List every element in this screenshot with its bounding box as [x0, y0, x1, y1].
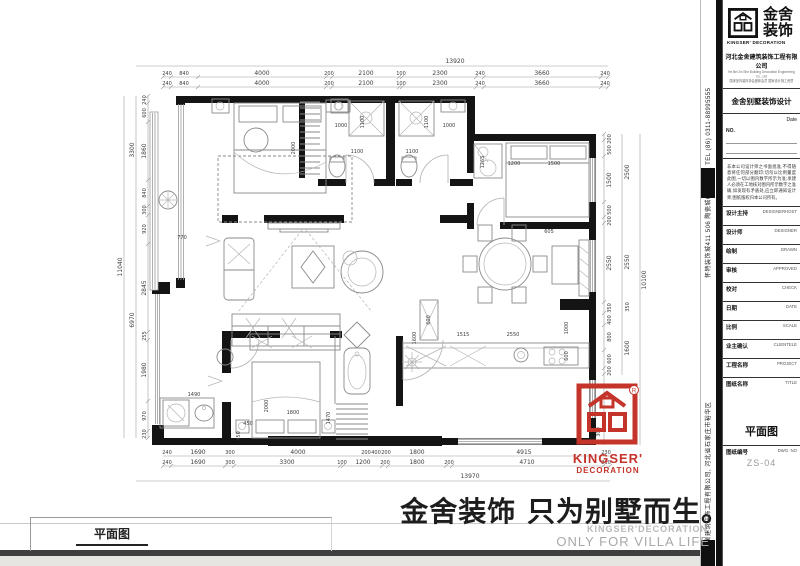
titleblock-row-date: 日期 DATE — [723, 301, 800, 320]
dim-label: 200 — [361, 450, 371, 456]
dim-label: 240 — [475, 81, 485, 87]
dim-label: 1490 — [188, 392, 201, 398]
kingser-logo-icon: R — [576, 383, 640, 447]
dim-label: 450 — [236, 431, 242, 441]
dim-label: 400 — [607, 315, 613, 325]
dim-label: 1100 — [424, 116, 430, 129]
row-value: TITLE — [785, 380, 797, 417]
dim-label: 2000 — [291, 142, 297, 155]
company-name: 河北金舍建筑装饰工程有限公司 — [723, 52, 800, 70]
dim-label: 100 — [396, 81, 406, 87]
row-value: DWG. NO — [778, 448, 797, 482]
dim-label: 6970 — [129, 312, 136, 327]
company-subtitle: 国家室内装饰协会团体会员 国家设计施工资质 — [727, 79, 796, 83]
dim-label: 800 — [607, 332, 613, 342]
dim-label: 1000 — [443, 123, 456, 129]
dim-label: 3660 — [534, 80, 549, 87]
plan-label-box: 平面图 — [30, 517, 332, 551]
dim-label: 1980 — [141, 362, 148, 377]
dim-label: 1600 — [412, 332, 418, 345]
dim-label: 1500 — [548, 161, 561, 167]
dim-label: 13970 — [460, 473, 479, 480]
dim-label: 1800 — [409, 459, 424, 466]
dim-label: 350 — [625, 302, 631, 312]
dim-label: 1000 — [564, 322, 570, 335]
kingser-brand-name: KINGSER' — [570, 452, 646, 466]
row-value: DESIGNERHOST — [763, 209, 797, 225]
dim-label: 255 — [142, 331, 148, 341]
dim-label: 4000 — [254, 70, 269, 77]
furniture-layer — [159, 99, 589, 438]
dim-label: 2000 — [264, 400, 270, 413]
dim-label: 200 — [607, 134, 613, 144]
dim-label: 200 — [607, 216, 613, 226]
slogan-en-large: ONLY FOR VILLA LIFE — [556, 534, 710, 549]
titleblock-row-drawn: 绘制 DRAWN — [723, 244, 800, 263]
titleblock-row-designer-host: 设计主持 DESIGNERHOST — [723, 206, 800, 225]
walls-layer — [152, 96, 596, 446]
dim-label: 300 — [225, 460, 235, 466]
row-value: PROJECT — [777, 361, 797, 377]
dim-label: 1600 — [624, 340, 631, 355]
no-label: NO. — [723, 125, 800, 134]
stairs-lower — [335, 336, 368, 439]
dim-label: 1200 — [355, 459, 370, 466]
row-label: 日期 — [726, 304, 737, 320]
row-label: 设计主持 — [726, 209, 748, 225]
dim-label: 1800 — [409, 449, 424, 456]
dim-label: 1000 — [335, 123, 348, 129]
dim-label: 200 — [380, 460, 390, 466]
dim-label: 3300 — [279, 459, 294, 466]
dim-label: 2550 — [624, 254, 631, 269]
dim-label: 200 — [324, 71, 334, 77]
dim-label: 500 — [607, 205, 613, 215]
dimension-lines — [124, 66, 640, 481]
dim-label: 920 — [142, 224, 148, 234]
row-value: APPROVED — [773, 266, 797, 282]
dim-label: 500 — [607, 145, 613, 155]
dim-label: 240 — [162, 460, 172, 466]
dim-label: 2550 — [507, 332, 520, 338]
brand-en: KINGSER' DECORATION — [727, 40, 785, 45]
dim-label: 3660 — [534, 70, 549, 77]
dim-label: 600 — [142, 108, 148, 118]
row-value: CLIENTELE — [774, 342, 797, 358]
dim-label: 240 — [162, 450, 172, 456]
row-label: 图纸编号 — [726, 448, 748, 482]
dim-label: 200 — [607, 366, 613, 376]
dim-label: 2500 — [624, 164, 631, 179]
dim-label: 230 — [142, 429, 148, 439]
dim-label: 2300 — [432, 80, 447, 87]
no-line — [726, 134, 797, 144]
brand-cn-bottom: 装饰 — [763, 22, 793, 38]
drawing-title: 平面图 — [723, 423, 800, 439]
disclaimer-text: 非本公司设计师之书面批准,不得随意将任何部分翻印;切勿以比例量度此图,一切以图内… — [723, 158, 800, 206]
row-label: 工程名称 — [726, 361, 748, 377]
dim-label: 300 — [142, 205, 148, 215]
dim-label: 11040 — [117, 257, 124, 276]
dim-label: 2300 — [432, 70, 447, 77]
brand-cn-top: 金舍 — [763, 6, 793, 22]
dim-label: 840 — [142, 188, 148, 198]
dim-label: 240 — [600, 81, 610, 87]
titleblock-row-check: 校对 CHECK — [723, 282, 800, 301]
dim-label: 240 — [162, 71, 172, 77]
dim-label: 200 — [381, 450, 391, 456]
dim-label: 1860 — [141, 143, 148, 158]
dim-label: 2100 — [358, 70, 373, 77]
dim-label: 2550 — [606, 255, 613, 270]
dim-label: 770 — [177, 235, 187, 241]
dim-label: 1690 — [190, 449, 205, 456]
dim-label: 605 — [544, 229, 554, 235]
dim-label: 4710 — [519, 459, 534, 466]
dim-label: 600 — [564, 351, 570, 361]
row-value: DESIGNER — [775, 228, 797, 244]
no-line — [726, 144, 797, 154]
dim-label: 4915 — [516, 449, 531, 456]
dim-label: 240 — [475, 71, 485, 77]
dim-label: 350 — [607, 303, 613, 313]
dim-label: 450 — [243, 421, 253, 427]
dim-label: 1470 — [326, 412, 332, 425]
date-label: Date — [723, 113, 800, 125]
dim-label: 970 — [142, 411, 148, 421]
dim-label: 1500 — [606, 172, 613, 187]
kingser-brand-block: R KINGSER' DECORATION — [570, 383, 646, 476]
dim-label: 2100 — [358, 80, 373, 87]
row-label: 校对 — [726, 285, 737, 301]
titleblock-row-project: 工程名称 PROJECT — [723, 358, 800, 377]
product-name: 金舍别墅装饰设计 — [723, 89, 800, 113]
dim-label: 2845 — [141, 280, 148, 295]
dim-label: 600 — [426, 315, 432, 325]
dim-label: 1200 — [508, 161, 521, 167]
row-label: 比例 — [726, 323, 737, 339]
row-label: 业主确认 — [726, 342, 748, 358]
dim-label: 1800 — [287, 410, 300, 416]
svg-text:R: R — [632, 389, 637, 395]
title-block: 金舍 装饰 KINGSER' DECORATION 河北金舍建筑装饰工程有限公司… — [722, 0, 800, 566]
titleblock-row-title: 图纸名称 TITLE — [723, 377, 800, 417]
dim-label: 100 — [396, 71, 406, 77]
title-block-header: 金舍 装饰 KINGSER' DECORATION — [723, 0, 800, 48]
strip-fold-mark — [701, 168, 715, 198]
row-label: 绘制 — [726, 247, 737, 263]
dim-label: 1100 — [351, 149, 364, 155]
company-name-en: He Bei Jin She Building Decoration Engin… — [727, 70, 796, 78]
titleblock-row-clientele: 业主确认 CLIENTELE — [723, 339, 800, 358]
brand-cn: 金舍 装饰 — [763, 6, 793, 38]
plan-label: 平面图 — [76, 525, 148, 546]
dim-label: 400 — [371, 450, 381, 456]
drawing-sheet: 13920 240 840 4000 200 2100 100 2300 240… — [0, 0, 800, 550]
dim-label: 200 — [444, 460, 454, 466]
section-divider: 金舍别墅装饰设计 — [723, 88, 800, 113]
kingser-logo-black-icon — [728, 8, 758, 38]
row-value: DRAWN — [781, 247, 797, 263]
floor-plan-drawing: 13920 240 840 4000 200 2100 100 2300 240… — [0, 0, 800, 566]
row-value: CHECK — [782, 285, 797, 301]
dim-label: 100 — [337, 460, 347, 466]
row-value: SCALE — [783, 323, 797, 339]
dim-label: 10100 — [641, 270, 648, 289]
titleblock-row-approved: 审核 APPROVED — [723, 263, 800, 282]
dim-label: 300 — [225, 450, 235, 456]
dim-label: 3300 — [129, 142, 136, 157]
row-label: 图纸名称 — [726, 380, 748, 417]
dim-label: 1100 — [360, 116, 366, 129]
row-label: 审核 — [726, 266, 737, 282]
dim-label: 1100 — [406, 149, 419, 155]
dim-label: 1265 — [480, 156, 486, 169]
row-label: 设计师 — [726, 228, 743, 244]
dim-label: 840 — [179, 81, 189, 87]
dim-label: 4000 — [290, 449, 305, 456]
kingser-brand-sub: DECORATION — [570, 466, 646, 476]
dim-label: 600 — [607, 354, 613, 364]
dim-label: 840 — [179, 71, 189, 77]
row-value: DATE — [786, 304, 797, 320]
dim-label: 13920 — [445, 58, 464, 65]
dim-label: 240 — [142, 95, 148, 105]
dim-label: 240 — [600, 71, 610, 77]
titleblock-row-scale: 比例 SCALE — [723, 320, 800, 339]
slogan-en-small: KINGSER'DECORATION — [587, 524, 708, 534]
titleblock-row-designer: 设计师 DESIGNER — [723, 225, 800, 244]
dim-label: 1515 — [457, 332, 470, 338]
dim-label: 200 — [324, 81, 334, 87]
dim-label: 4000 — [254, 80, 269, 87]
dim-label: 1690 — [190, 459, 205, 466]
dim-label: 240 — [162, 81, 172, 87]
